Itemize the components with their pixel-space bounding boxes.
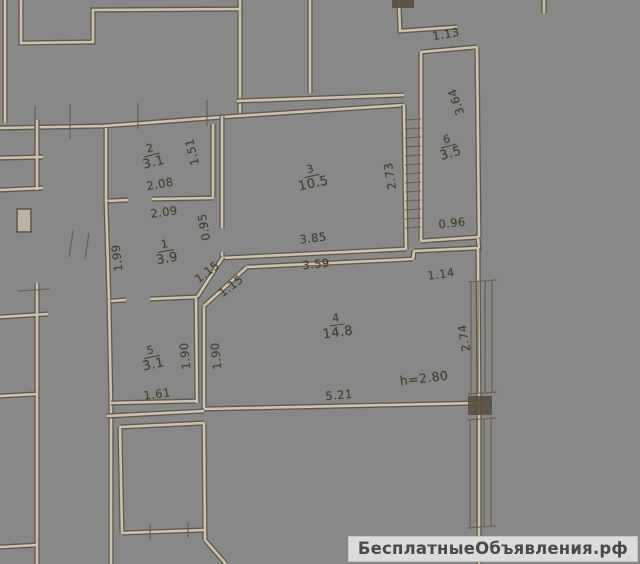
dim-room4-top: 3.59 xyxy=(302,256,331,273)
dim-room4-bottom: 5.21 xyxy=(325,387,353,403)
room-1-label: 1 3.9 xyxy=(153,237,179,267)
watermark-text: БесплатныеОбъявления.рф xyxy=(358,539,628,558)
dim-room6-bottom: 0.96 xyxy=(438,215,467,232)
top-shaft-block xyxy=(392,0,414,8)
wall-pier xyxy=(468,396,492,415)
floorplan-photo: 2 3.1 1 3.9 3 10.5 4 14.8 5 3.1 6 3.5 2.… xyxy=(0,0,640,564)
floorplan-drawing xyxy=(0,0,640,564)
left-pier xyxy=(17,209,31,232)
hatch-layer xyxy=(17,0,497,540)
room-1-area: 3.9 xyxy=(155,250,179,268)
room-4-area: 14.8 xyxy=(322,323,354,341)
dim-room5-right: 1.90 xyxy=(177,342,194,371)
room-4-label: 4 14.8 xyxy=(320,311,354,342)
room-3-label: 3 10.5 xyxy=(294,161,329,194)
dim-room4-left: 1.90 xyxy=(208,342,225,371)
walls-layer xyxy=(0,0,544,564)
watermark-badge: БесплатныеОбъявления.рф xyxy=(348,536,638,562)
